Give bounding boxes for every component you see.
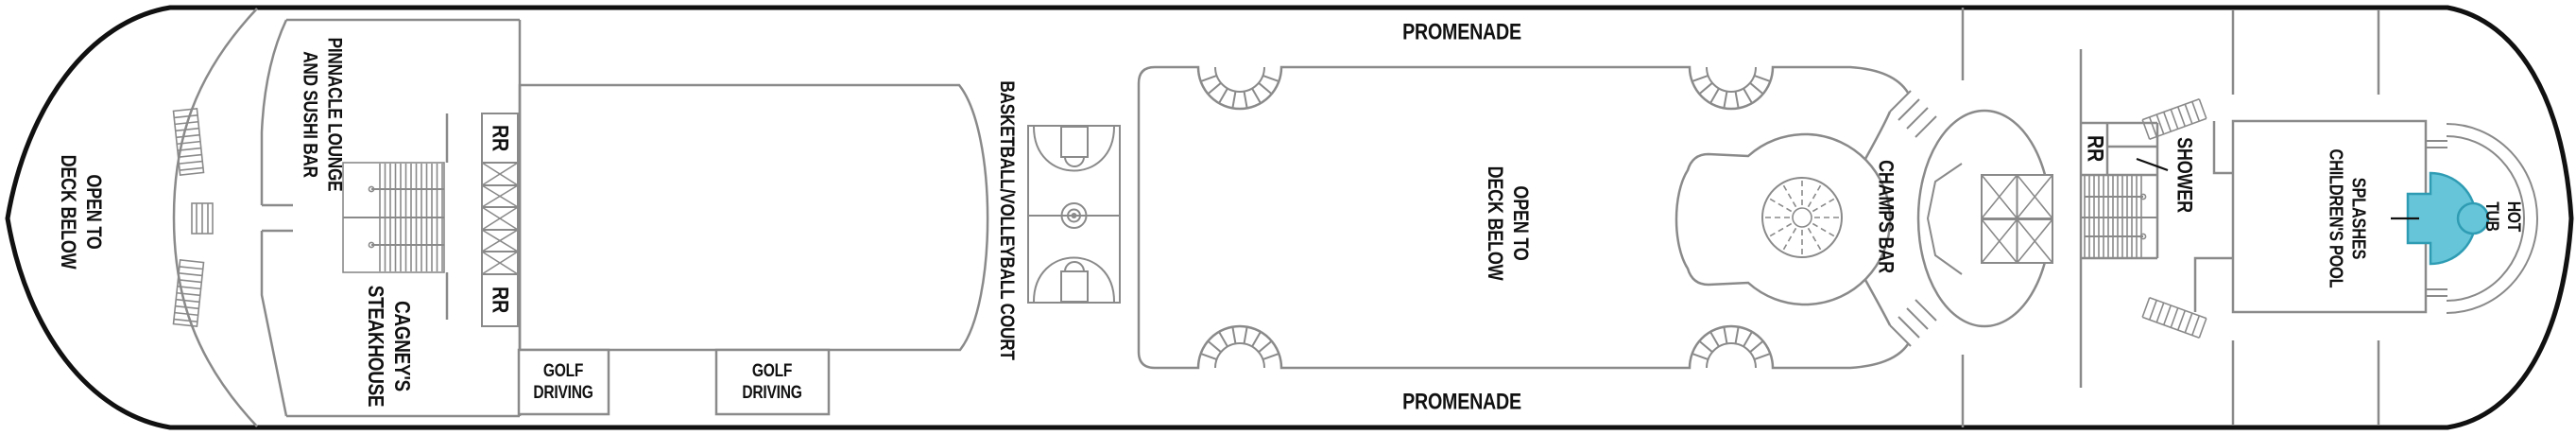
splashes-pool-label: SPLASHES CHILDREN'S POOL: [2324, 149, 2370, 288]
deck-plan: OPEN TO DECK BELOW PINNACLE LOUNGE AND S…: [0, 0, 2576, 435]
rr-forward-bottom-label: RR: [486, 287, 513, 313]
basketball-court-label: BASKETBALL/VOLLEYBALL COURT: [994, 80, 1019, 359]
mid-open-deck-label: OPEN TO DECK BELOW: [1482, 166, 1533, 281]
champs-bar-label: CHAMPS BAR: [1873, 160, 1898, 273]
golf-driving-1-label: GOLF DRIVING: [533, 360, 592, 404]
rr-aft-label: RR: [2081, 135, 2108, 162]
hot-tub-label: HOT TUB: [2481, 186, 2524, 247]
promenade-top-label: PROMENADE: [1402, 18, 1521, 45]
cagneys-label: CAGNEY'S STEAKHOUSE: [363, 286, 416, 408]
elevator-bank-aft-icon: [1982, 175, 2052, 263]
promenade-bottom-label: PROMENADE: [1402, 388, 1521, 415]
bow-open-deck-label: OPEN TO DECK BELOW: [55, 155, 106, 270]
golf-driving-2-label: GOLF DRIVING: [742, 360, 801, 404]
rr-forward-top-label: RR: [486, 125, 513, 151]
pinnacle-lounge-label: PINNACLE LOUNGE AND SUSHI BAR: [298, 38, 346, 192]
shower-label: SHOWER: [2172, 137, 2197, 213]
